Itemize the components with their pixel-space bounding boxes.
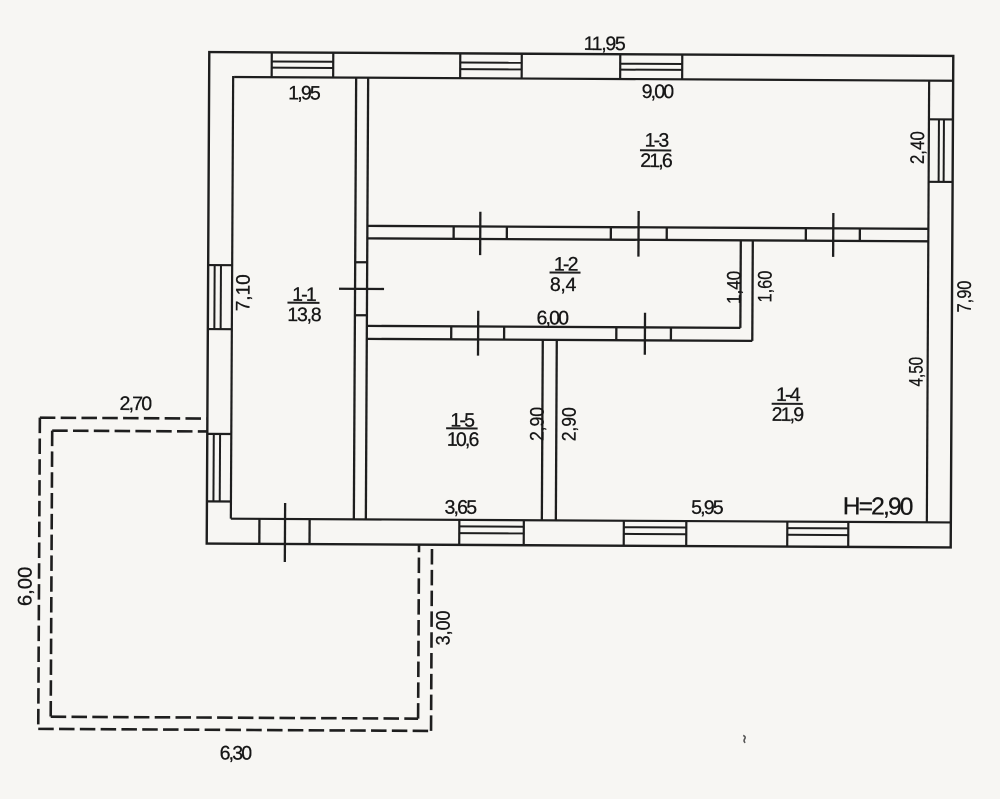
svg-text:2,70: 2,70 [120,393,153,415]
svg-text:21,9: 21,9 [772,404,804,426]
svg-text:9,00: 9,00 [642,81,675,103]
svg-text:3,65: 3,65 [444,497,477,519]
svg-text:3,00: 3,00 [432,610,454,645]
svg-text:10,6: 10,6 [447,429,479,451]
svg-text:11,95: 11,95 [584,33,626,55]
svg-text:1,95: 1,95 [288,82,321,104]
svg-text:2,90: 2,90 [527,407,549,441]
svg-text:1-4: 1-4 [776,384,801,406]
svg-text:H=2,90: H=2,90 [843,493,913,520]
svg-text:1,60: 1,60 [754,270,776,302]
svg-text:7,10: 7,10 [232,274,254,311]
svg-text:1,40: 1,40 [723,271,745,304]
svg-text:6,00: 6,00 [14,566,36,606]
svg-text:6,30: 6,30 [220,742,253,764]
svg-text:21,6: 21,6 [640,150,672,172]
svg-text:6,00: 6,00 [536,307,569,329]
svg-text:2,40: 2,40 [907,131,929,164]
svg-text:4,50: 4,50 [905,357,927,387]
svg-text:7,90: 7,90 [954,280,976,312]
svg-text:13,8: 13,8 [287,304,321,326]
svg-text:1-3: 1-3 [645,130,669,152]
svg-text:5,95: 5,95 [691,497,724,519]
svg-text:8,4: 8,4 [550,274,577,296]
svg-text:2,90: 2,90 [558,407,580,441]
